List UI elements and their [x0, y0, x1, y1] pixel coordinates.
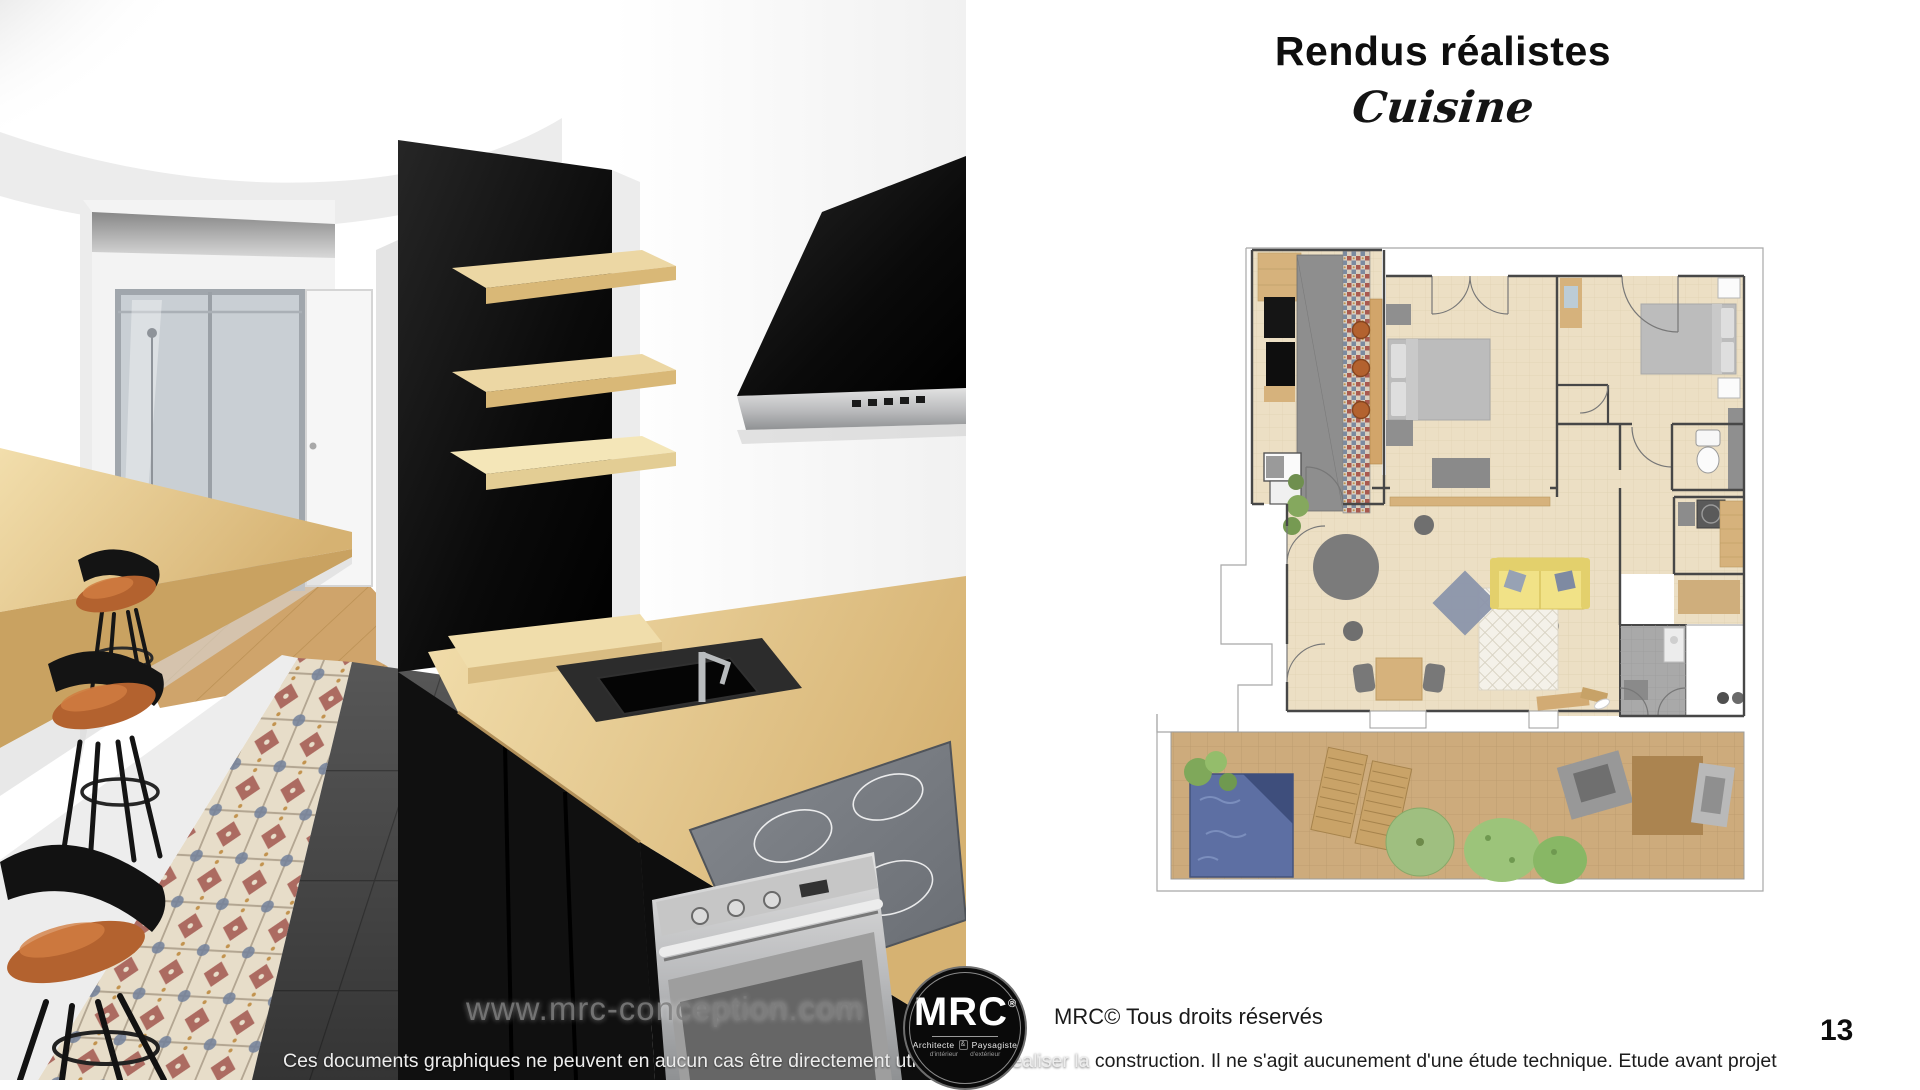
- door-handle: [310, 443, 317, 450]
- plan-kitchen: [1258, 251, 1382, 535]
- plan-pool: [1190, 774, 1293, 877]
- plan-storage-rug: [1678, 580, 1740, 614]
- page-number: 13: [1820, 1014, 1853, 1048]
- page-header: Rendus réalistes Cuisine: [966, 0, 1920, 133]
- plan-terrace: [1171, 732, 1744, 884]
- plan-round-rug: [1313, 534, 1379, 600]
- plan-bar: [1370, 299, 1382, 464]
- floor-plan-svg: [1140, 220, 1780, 940]
- mrc-logo-name: MRC®: [905, 992, 1025, 1032]
- plan-sofa: [1490, 558, 1590, 609]
- plan-shower-room: [1620, 625, 1686, 716]
- kitchen-3d-render: [0, 0, 966, 1080]
- kitchen-3d-render-svg: [0, 0, 966, 1080]
- registered-mark: ®: [1008, 998, 1016, 1010]
- plan-bar-stools: [1353, 322, 1370, 419]
- page-subtitle: Cuisine: [963, 83, 1920, 133]
- showerhead-hint: [147, 328, 157, 338]
- page-title: Rendus réalistes: [966, 28, 1920, 75]
- plan-bed1-rug: [1432, 458, 1490, 488]
- logo-tagline: Architecte & Paysagiste: [905, 1040, 1025, 1050]
- copyright-text: MRC© Tous droits réservés: [1054, 1004, 1323, 1030]
- logo-subline: d'intérieur d'extérieur: [905, 1051, 1025, 1058]
- plan-terrace-steps: [1370, 711, 1558, 728]
- website-watermark: www.mrc-conception.com: [466, 990, 864, 1028]
- plan-side-room: [1686, 625, 1744, 716]
- plan-sliding-door: [1390, 497, 1550, 506]
- logo-ampersand: &: [959, 1040, 968, 1050]
- disclaimer-right: construction. Il ne s'agit aucunement d'…: [1095, 1050, 1777, 1072]
- wall-return: [376, 240, 398, 672]
- presentation-page: Rendus réalistes Cuisine: [0, 0, 1920, 1080]
- logo-divider: [932, 1036, 998, 1037]
- plan-mosaic-strip: [1343, 251, 1370, 513]
- mrc-logo: MRC® Architecte & Paysagiste d'intérieur…: [903, 966, 1027, 1090]
- black-column: [398, 140, 640, 672]
- floor-plan: [1140, 220, 1780, 940]
- disclaimer-line: Ces documents graphiques ne peuvent en a…: [283, 1050, 1777, 1073]
